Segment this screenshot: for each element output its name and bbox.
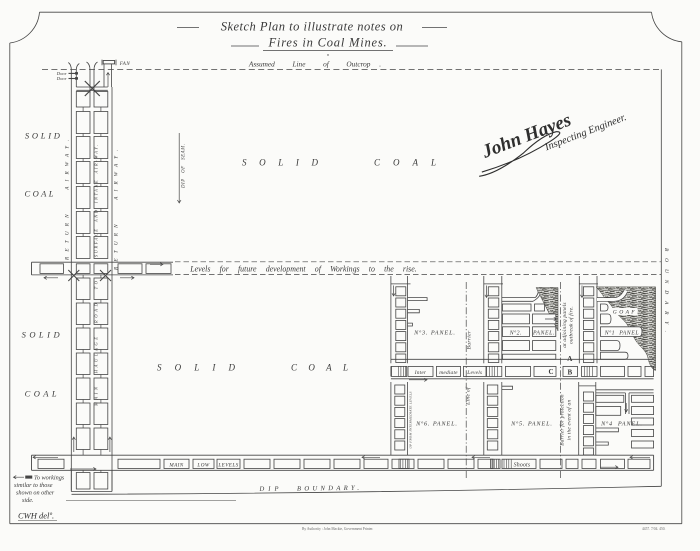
svg-text:at adjoining panels: at adjoining panels: [562, 302, 568, 347]
svg-text:SURFACE AND INTAKE AIR-WAY.: SURFACE AND INTAKE AIR-WAY.: [94, 145, 99, 257]
svg-text:Levels: Levels: [466, 370, 482, 376]
svg-text:Shoots: Shoots: [514, 463, 531, 469]
svg-text:shown on other: shown on other: [16, 490, 55, 497]
svg-text:COAL: COAL: [291, 363, 348, 373]
svg-text:Line of: Line of: [465, 386, 472, 406]
svg-text:PANEL.: PANEL.: [532, 331, 555, 337]
svg-text:LEVELS: LEVELS: [217, 462, 238, 468]
svg-text:A: A: [567, 355, 572, 363]
svg-text:RETURN AIRWAY.: RETURN AIRWAY.: [113, 150, 119, 271]
svg-text:RETURN AIRWAY.: RETURN AIRWAY.: [64, 140, 70, 261]
svg-text:COAL: COAL: [25, 389, 57, 399]
svg-text:Door: Door: [56, 76, 67, 81]
svg-text:4457. 7/04. 450.: 4457. 7/04. 450.: [642, 527, 666, 531]
svg-text:SOLID: SOLID: [157, 363, 236, 373]
svg-text:Nº5. PANEL.: Nº5. PANEL.: [510, 421, 553, 428]
svg-text:COAL: COAL: [25, 189, 54, 199]
svg-text:LOW: LOW: [196, 462, 209, 468]
svg-text:UP FROM INTERMEDIATE LEVELS: UP FROM INTERMEDIATE LEVELS: [409, 391, 413, 448]
svg-text:Barrier: Barrier: [466, 330, 472, 349]
svg-text:G O A F: G O A F: [613, 310, 635, 316]
svg-text:SOLID: SOLID: [25, 131, 61, 141]
svg-text:By Authority : John Mackie, Go: By Authority : John Mackie, Government P…: [302, 527, 373, 532]
svg-text:C: C: [548, 368, 553, 376]
svg-text:Nº4 PANEL.: Nº4 PANEL.: [600, 421, 643, 428]
svg-text:COAL: COAL: [374, 158, 436, 168]
svg-text:Inter: Inter: [414, 370, 427, 376]
svg-text:To workings: To workings: [34, 475, 65, 482]
svg-text:mediate: mediate: [439, 370, 458, 376]
svg-text:DIP OF SEAM.: DIP OF SEAM.: [182, 144, 187, 189]
svg-text:Assumed Line of Outcrop .: Assumed Line of Outcrop .: [248, 60, 381, 69]
svg-text:SOLID: SOLID: [22, 330, 61, 340]
svg-text:MAIN: MAIN: [168, 462, 183, 468]
svg-text:FAN: FAN: [119, 62, 131, 67]
svg-text:Barrier for protection: Barrier for protection: [559, 394, 566, 446]
svg-text:in the event of an: in the event of an: [566, 400, 573, 441]
svg-text:Fires in Coal Mines.: Fires in Coal Mines.: [267, 36, 387, 50]
svg-text:Door: Door: [56, 71, 67, 76]
svg-text:DIP: DIP: [258, 486, 278, 493]
svg-text:side.: side.: [22, 497, 34, 504]
svg-text:CWH delº.: CWH delº.: [18, 511, 54, 521]
svg-text:outbreak of fire.: outbreak of fire.: [568, 306, 575, 344]
svg-text:Sketch Plan to illustrate note: Sketch Plan to illustrate notes on: [221, 20, 404, 34]
svg-text:similar to those: similar to those: [14, 482, 53, 489]
svg-text:Nº1 PANEL: Nº1 PANEL: [604, 331, 639, 337]
svg-text:Nº2.: Nº2.: [509, 331, 522, 337]
svg-text:Levels for future development: Levels for future development of Working…: [189, 264, 416, 273]
svg-text:B: B: [567, 369, 572, 377]
svg-text:SOLID: SOLID: [242, 158, 319, 168]
svg-text:BOUNDARY.: BOUNDARY.: [297, 485, 359, 493]
svg-text:BOUNDARY.: BOUNDARY.: [663, 248, 669, 332]
svg-text:Nº6. PANEL.: Nº6. PANEL.: [415, 421, 458, 428]
svg-text:Nº3. PANEL.: Nº3. PANEL.: [413, 330, 456, 337]
